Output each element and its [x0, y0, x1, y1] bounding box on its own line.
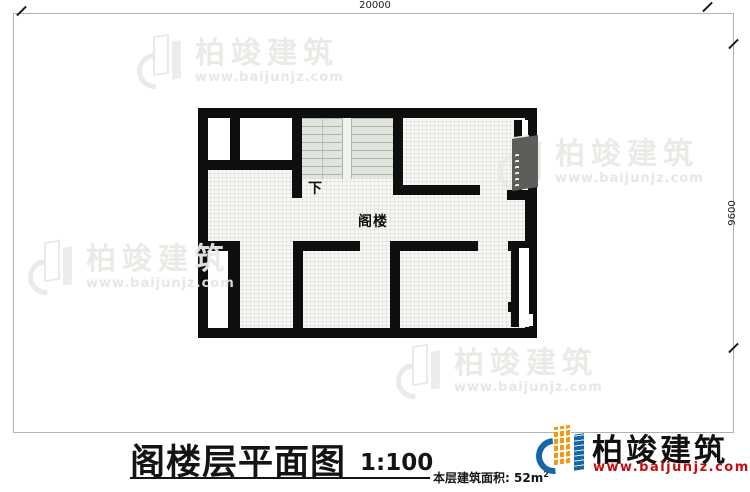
room-label-attic: 阁楼 — [358, 211, 388, 231]
wall — [293, 241, 303, 328]
watermark-building-icon — [512, 135, 538, 191]
watermark-name: 柏竣建筑 — [195, 37, 344, 70]
company-website: www.baijunjz.com — [593, 460, 750, 475]
title-underline — [130, 477, 430, 479]
wall — [292, 118, 302, 198]
drawing-scale: 1:100 — [360, 450, 433, 476]
wall — [198, 328, 537, 338]
wall — [390, 241, 400, 328]
drawing-sheet: 20000 9600 — [0, 0, 750, 492]
closet-space — [240, 118, 292, 160]
watermark-site: www.baijunjz.com — [454, 380, 603, 395]
wall — [393, 118, 403, 195]
watermark-site: www.baijunjz.com — [86, 276, 235, 291]
wall — [390, 241, 478, 251]
watermark-building-icon — [28, 241, 80, 303]
watermark-site: www.baijunjz.com — [195, 70, 344, 85]
wall — [293, 241, 360, 251]
closet-space — [208, 118, 230, 160]
wall — [393, 185, 480, 195]
stair-down-label: 下 — [308, 178, 322, 198]
building-logo-icon — [538, 426, 590, 480]
staircase — [302, 118, 393, 179]
wall — [208, 160, 302, 170]
window — [525, 314, 533, 326]
dimension-top-value: 20000 — [340, 0, 410, 11]
window — [511, 248, 519, 327]
stair-divider — [342, 118, 352, 179]
floor-area-label: 本层建筑面积: — [433, 471, 510, 485]
floor-area-text: 本层建筑面积: 52m2 — [433, 469, 549, 486]
wall — [230, 118, 240, 160]
stair-flight-left — [302, 118, 342, 179]
watermark-building-icon — [137, 35, 189, 97]
watermark-name: 柏竣建筑 — [86, 243, 235, 276]
wall — [198, 108, 208, 338]
watermark-building-icon — [396, 345, 448, 407]
watermark-site: www.baijunjz.com — [555, 171, 704, 186]
watermark-name: 柏竣建筑 — [555, 138, 704, 171]
floor-plan: 下 阁楼 — [198, 108, 537, 338]
dimension-right-value: 9600 — [718, 196, 748, 230]
stair-flight-right — [352, 118, 393, 179]
watermark-name: 柏竣建筑 — [454, 347, 603, 380]
wall — [198, 108, 537, 118]
dimension-tick-icon — [702, 2, 713, 13]
